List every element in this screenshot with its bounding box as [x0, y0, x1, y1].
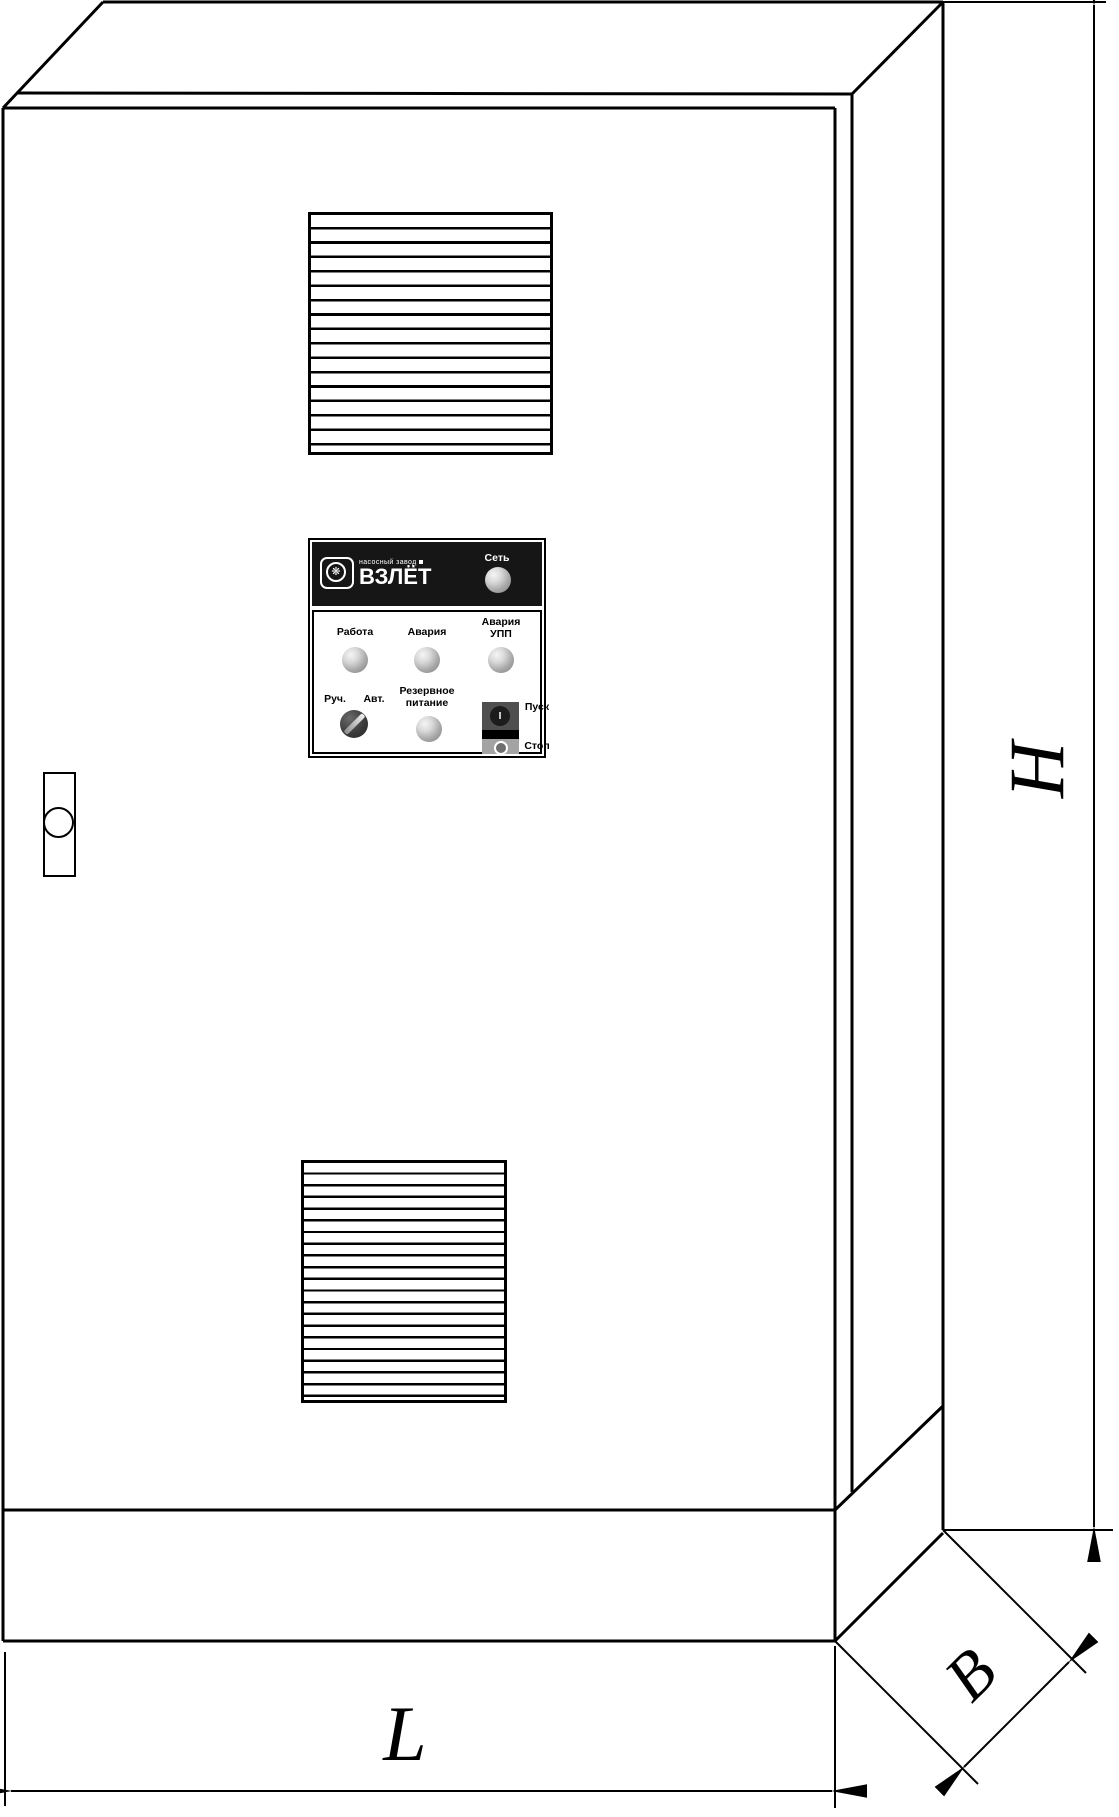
reserve-power-line2: питание [400, 697, 455, 709]
run-led-label: Работа [337, 626, 373, 638]
panel-main-area: Работа Авария Авария УПП Руч. Авт. Резер… [312, 610, 542, 754]
stop-button-label: Стоп [524, 740, 549, 752]
alarm-upp-line1: Авария [482, 616, 521, 628]
cabinet-linework: H L B [0, 0, 1119, 1817]
reserve-power-line1: Резервное [400, 685, 455, 697]
vent-grille-bottom [301, 1160, 507, 1403]
power-led [485, 567, 511, 593]
reserve-power-led [416, 716, 442, 742]
alarm-upp-led-label: Авария УПП [482, 616, 521, 640]
stop-button-circle[interactable] [494, 741, 508, 755]
brand-logo: ❋ насосный завод ВЗЛЁТ [320, 557, 431, 589]
key-lock-icon[interactable] [43, 807, 74, 838]
button-divider [482, 730, 519, 739]
start-button-circle[interactable]: I [490, 706, 510, 726]
dimension-extension-lines [5, 2, 1113, 1808]
alarm-upp-line2: УПП [482, 628, 521, 640]
power-led-label: Сеть [485, 552, 510, 564]
dimension-label-length: L [382, 1690, 426, 1777]
door-handle[interactable] [43, 772, 76, 877]
stop-button-zone[interactable] [482, 739, 519, 754]
alarm-upp-led [488, 647, 514, 673]
pump-impeller-icon: ❋ [320, 557, 354, 589]
dimension-label-depth: B [931, 1635, 1011, 1715]
dimension-label-height: H [993, 738, 1080, 799]
run-led [342, 647, 368, 673]
brand-text: насосный завод ВЗЛЁТ [359, 559, 431, 588]
technical-drawing-cabinet: H L B ❋ насосный завод ВЗЛЁТ Сеть [0, 0, 1119, 1817]
vent-grille-top [308, 212, 553, 455]
logo-square-icon [419, 560, 423, 564]
alarm-led-label: Авария [408, 626, 447, 638]
mode-manual-label: Руч. [324, 693, 346, 705]
panel-header: ❋ насосный завод ВЗЛЁТ Сеть [312, 542, 542, 606]
alarm-led [414, 647, 440, 673]
reserve-power-label: Резервное питание [400, 685, 455, 709]
start-stop-button[interactable]: I [482, 702, 519, 754]
impeller-blades-icon: ❋ [331, 567, 340, 578]
mode-switch-knob[interactable] [340, 710, 368, 738]
start-button-label: Пуск [525, 701, 549, 713]
brand-title: ВЗЛЁТ [359, 566, 431, 588]
knob-pointer [343, 713, 365, 735]
mode-auto-label: Авт. [363, 693, 384, 705]
control-panel: ❋ насосный завод ВЗЛЁТ Сеть Работа Авари… [308, 538, 546, 758]
impeller-ring: ❋ [326, 562, 346, 582]
